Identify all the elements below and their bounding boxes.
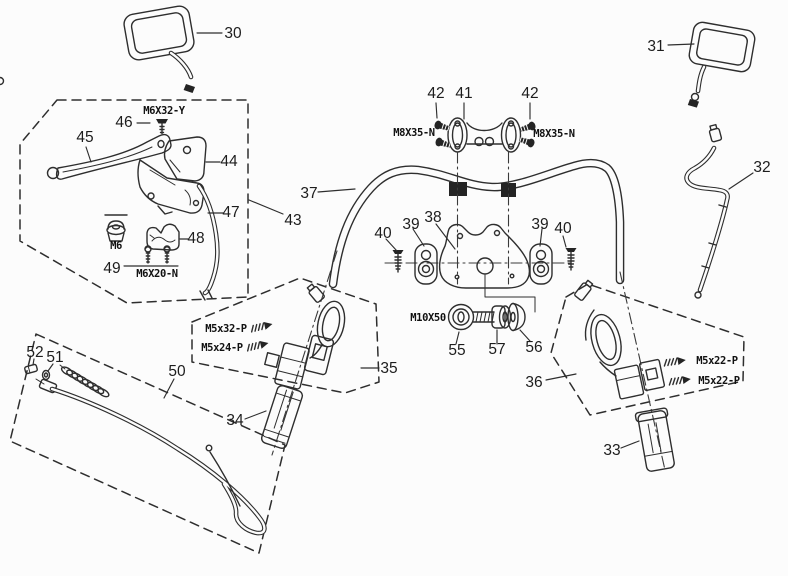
label-layer: 3031323334353637383939404041424243444546… [26, 25, 770, 459]
handlebar-clamp-assembly [433, 118, 536, 152]
screw-m5x24 [246, 339, 269, 352]
fastener-spec-label: M6 [110, 240, 122, 252]
part-callout-40: 40 [554, 220, 572, 237]
bolt-m8x35 [434, 137, 451, 150]
left-grip [260, 384, 303, 449]
part-callout-42: 42 [427, 85, 444, 102]
part-callout-52: 52 [26, 344, 43, 361]
throttle-cable [687, 124, 728, 298]
right-grip [635, 408, 677, 473]
part-callout-30: 30 [224, 25, 242, 42]
screw-m5x22 [663, 356, 686, 367]
parts-diagram-page: 3031323334353637383939404041424243444546… [0, 0, 788, 576]
fastener-spec-label: M6X32-Y [143, 105, 186, 117]
dashed-box-left-switch-assembly [192, 278, 379, 393]
right-mirror [688, 21, 756, 108]
screw-m5x22 [668, 375, 691, 386]
part-callout-38: 38 [424, 209, 441, 226]
part-callout-41: 41 [455, 85, 472, 102]
part-callout-40: 40 [374, 225, 392, 242]
part-callout-32: 32 [753, 159, 770, 176]
fastener-spec-label: M5x32-P [205, 323, 247, 335]
cable-ring [43, 371, 50, 380]
brake-lever-blade [48, 135, 172, 180]
fastener-spec-label: M8X35-N [533, 128, 575, 140]
fastener-spec-label: M5x24-P [201, 342, 243, 354]
cable-assembly [24, 364, 264, 533]
screw-m6x32 [156, 119, 168, 134]
holder-screw-left [393, 250, 404, 272]
diagram-canvas: 3031323334353637383939404041424243444546… [0, 0, 788, 576]
part-callout-42: 42 [521, 85, 538, 102]
part-callout-37: 37 [300, 185, 317, 202]
part-callout-39: 39 [402, 216, 419, 233]
fastener-spec-label: M6X20-N [136, 268, 178, 280]
part-callout-44: 44 [220, 153, 238, 170]
part-callout-33: 33 [603, 442, 620, 459]
holder-right [530, 244, 552, 284]
part-callout-55: 55 [448, 342, 465, 359]
part-callout-46: 46 [115, 114, 132, 131]
part-callout-43: 43 [284, 212, 301, 229]
part-callout-45: 45 [76, 129, 93, 146]
cable-end-piece [24, 364, 37, 374]
part-callout-50: 50 [168, 363, 186, 380]
holder-left [415, 244, 437, 284]
right-switch-assembly [574, 272, 691, 470]
part-callout-39: 39 [531, 216, 548, 233]
right-switch-housing [614, 365, 644, 399]
m10-bolt-assembly [449, 275, 536, 331]
part-callout-57: 57 [488, 341, 505, 358]
part-callout-49: 49 [103, 260, 120, 277]
holder-screw-right [566, 248, 577, 270]
nut-m6 [105, 215, 127, 241]
screw-m5x32 [250, 320, 273, 333]
part-callout-31: 31 [647, 38, 664, 55]
left-brake-lever-assembly [48, 119, 218, 300]
fastener-spec-label: M8X35-N [393, 127, 435, 139]
leader-lines [33, 33, 753, 448]
part-callout-36: 36 [525, 374, 542, 391]
part-callout-47: 47 [222, 204, 239, 221]
part-callout-34: 34 [226, 412, 244, 429]
fastener-spec-label: M10X50 [410, 312, 446, 324]
part-callout-35: 35 [380, 360, 397, 377]
cable-clamp-48 [147, 224, 179, 250]
part-callout-48: 48 [187, 230, 204, 247]
fastener-spec-label: M5x22-P [696, 355, 738, 367]
left-mirror [0, 5, 195, 93]
fastener-spec-label: M5x22-P [698, 375, 740, 387]
part-callout-51: 51 [46, 349, 63, 366]
part-callout-56: 56 [525, 339, 542, 356]
